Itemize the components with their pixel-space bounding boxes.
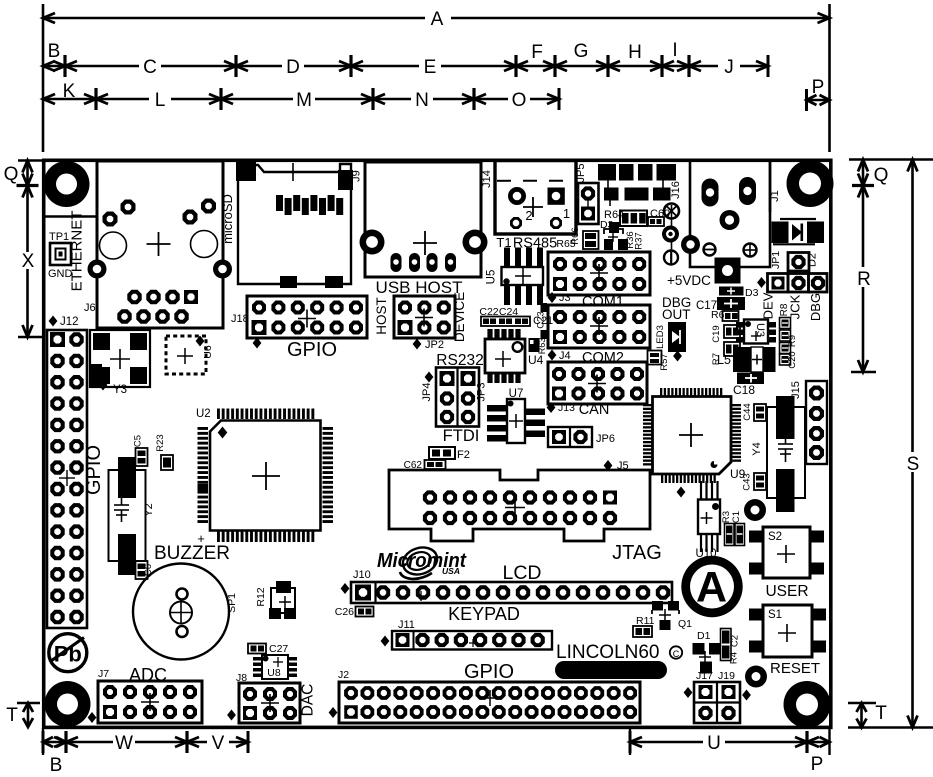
svg-text:U8: U8	[267, 667, 281, 679]
svg-text:V: V	[212, 733, 225, 754]
svg-text:J: J	[724, 57, 734, 78]
svg-text:ETHERNET: ETHERNET	[69, 211, 86, 292]
svg-text:H: H	[628, 42, 642, 63]
svg-text:R57: R57	[659, 353, 670, 370]
svg-text:TP1: TP1	[49, 231, 69, 243]
svg-text:R9: R9	[787, 335, 798, 347]
svg-text:C5: C5	[133, 435, 144, 447]
svg-text:L5: L5	[717, 353, 731, 367]
svg-text:F: F	[531, 42, 543, 63]
svg-text:N: N	[415, 90, 429, 111]
svg-text:1: 1	[563, 206, 570, 221]
svg-text:USB HOST: USB HOST	[376, 278, 463, 297]
svg-text:R37: R37	[634, 232, 645, 249]
svg-text:Y2: Y2	[143, 503, 155, 516]
svg-text:C: C	[143, 57, 157, 78]
svg-text:KEYPAD: KEYPAD	[448, 604, 520, 624]
svg-text:U2: U2	[196, 408, 211, 420]
svg-text:J11: J11	[398, 619, 415, 631]
svg-text:2: 2	[525, 208, 532, 223]
svg-text:B: B	[50, 755, 63, 776]
svg-text:P: P	[812, 77, 825, 98]
svg-text:J12: J12	[60, 316, 79, 328]
svg-text:J2: J2	[338, 669, 349, 681]
svg-text:D: D	[286, 57, 300, 78]
svg-text:DBG: DBG	[808, 293, 823, 321]
svg-text:COM2: COM2	[582, 350, 624, 366]
svg-text:R65: R65	[556, 238, 575, 250]
svg-text:DEVICE: DEVICE	[452, 292, 467, 342]
svg-text:I: I	[672, 40, 677, 61]
svg-text:JTAG: JTAG	[612, 542, 662, 564]
svg-text:C18: C18	[733, 383, 755, 397]
svg-text:USA: USA	[442, 566, 460, 576]
svg-text:GPIO: GPIO	[287, 339, 337, 361]
svg-text:C43: C43	[742, 473, 753, 490]
svg-text:R63: R63	[537, 338, 547, 355]
svg-text:JP2: JP2	[425, 339, 444, 351]
svg-text:HOST: HOST	[374, 297, 389, 335]
svg-text:P: P	[811, 754, 824, 775]
svg-text:X: X	[22, 251, 35, 272]
svg-text:DEV: DEV	[761, 292, 776, 319]
svg-text:DAC: DAC	[300, 684, 317, 717]
svg-text:C27: C27	[269, 643, 288, 655]
svg-text:RESET: RESET	[770, 660, 820, 677]
svg-text:LINCOLN60: LINCOLN60	[556, 642, 660, 663]
svg-text:J1: J1	[769, 190, 781, 202]
svg-text:J4: J4	[559, 350, 571, 362]
svg-text:J14: J14	[481, 170, 493, 188]
svg-text:J13: J13	[558, 402, 575, 414]
svg-text:JP5: JP5	[575, 164, 587, 183]
svg-text:R23: R23	[155, 434, 166, 451]
svg-text:L: L	[155, 90, 166, 111]
svg-text:A: A	[431, 9, 444, 30]
svg-text:R12: R12	[255, 587, 267, 606]
svg-text:D1: D1	[697, 630, 711, 642]
svg-text:Pb: Pb	[54, 642, 82, 667]
svg-text:U: U	[707, 733, 721, 754]
svg-text:Y3: Y3	[113, 384, 127, 396]
svg-text:CAN: CAN	[579, 402, 610, 418]
svg-text:C19: C19	[711, 325, 722, 342]
svg-text:J19: J19	[718, 670, 735, 682]
svg-text:R8: R8	[779, 303, 790, 316]
svg-text:Q1: Q1	[678, 618, 692, 630]
svg-text:C: C	[673, 649, 680, 659]
svg-text:GPIO: GPIO	[464, 661, 514, 683]
svg-text:BUZZER: BUZZER	[154, 543, 230, 564]
svg-text:J6: J6	[84, 302, 96, 314]
svg-text:microSD: microSD	[220, 194, 235, 244]
svg-text:OUT: OUT	[662, 307, 691, 322]
svg-text:USER: USER	[765, 583, 808, 600]
svg-text:K: K	[63, 81, 76, 102]
svg-text:SP1: SP1	[226, 593, 238, 613]
svg-text:R4: R4	[729, 652, 740, 664]
svg-text:J16: J16	[670, 181, 682, 199]
svg-text:JP3: JP3	[476, 383, 488, 402]
svg-text:E: E	[424, 57, 437, 78]
svg-text:U5: U5	[486, 270, 498, 285]
svg-text:S2: S2	[768, 531, 782, 543]
svg-text:J3: J3	[559, 292, 571, 304]
svg-text:R: R	[857, 269, 871, 290]
svg-text:D3: D3	[745, 287, 759, 299]
svg-text:JP4: JP4	[421, 383, 433, 402]
svg-text:F2: F2	[457, 449, 470, 461]
svg-text:J7: J7	[98, 668, 109, 680]
svg-text:T: T	[875, 703, 887, 724]
svg-text:B: B	[48, 41, 61, 62]
svg-text:JP6: JP6	[596, 433, 615, 445]
svg-text:Y4: Y4	[751, 442, 763, 455]
svg-text:A: A	[696, 564, 727, 612]
svg-text:Q: Q	[874, 165, 889, 186]
svg-text:LED3: LED3	[655, 325, 666, 349]
svg-text:COM1: COM1	[582, 294, 624, 310]
svg-text:C60: C60	[650, 208, 670, 220]
svg-text:U6: U6	[202, 345, 214, 359]
svg-text:C1: C1	[731, 511, 742, 523]
svg-text:C20: C20	[787, 351, 798, 368]
svg-text:C23: C23	[536, 311, 547, 328]
svg-text:J10: J10	[353, 569, 371, 581]
svg-text:C44: C44	[742, 403, 753, 420]
svg-text:J9: J9	[351, 170, 363, 182]
svg-text:G: G	[574, 41, 589, 62]
svg-text:GPIO: GPIO	[83, 445, 105, 495]
svg-text:JP1: JP1	[770, 251, 782, 269]
svg-text:O: O	[512, 90, 527, 111]
svg-text:FTDI: FTDI	[443, 427, 480, 445]
svg-text:C26: C26	[335, 606, 354, 618]
svg-text:U7: U7	[509, 388, 524, 400]
svg-text:S1: S1	[768, 609, 782, 621]
svg-text:J18: J18	[231, 313, 249, 325]
svg-text:T: T	[6, 705, 18, 726]
svg-text:J15: J15	[790, 381, 802, 399]
svg-text:+5VDC: +5VDC	[667, 273, 711, 288]
svg-text:Q: Q	[4, 164, 19, 185]
svg-text:W: W	[115, 733, 133, 754]
svg-text:S: S	[907, 454, 920, 475]
svg-text:M: M	[296, 90, 312, 111]
svg-text:J17: J17	[696, 670, 713, 682]
